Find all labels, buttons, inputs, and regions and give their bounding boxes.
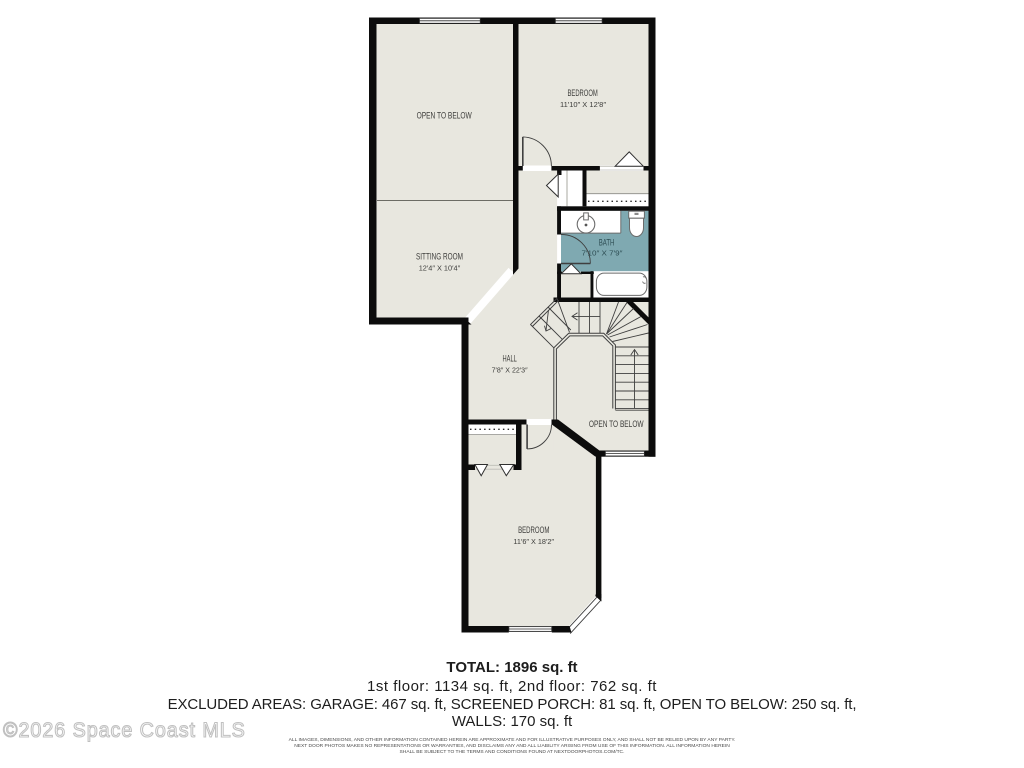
svg-text:SITTING ROOM: SITTING ROOM <box>416 252 463 262</box>
svg-text:OPEN TO BELOW: OPEN TO BELOW <box>417 111 473 121</box>
svg-text:11′10″ X 12′8″: 11′10″ X 12′8″ <box>560 100 606 109</box>
svg-text:OPEN TO BELOW: OPEN TO BELOW <box>589 419 644 429</box>
svg-text:BEDROOM: BEDROOM <box>518 525 549 535</box>
svg-text:11′6″ X 18′2″: 11′6″ X 18′2″ <box>513 537 554 546</box>
svg-text:7′8″ X 22′3″: 7′8″ X 22′3″ <box>492 366 528 375</box>
svg-text:BEDROOM: BEDROOM <box>568 88 598 98</box>
svg-text:HALL: HALL <box>503 353 517 363</box>
svg-text:BATH: BATH <box>599 237 615 247</box>
svg-text:12′4″ X 10′4″: 12′4″ X 10′4″ <box>419 263 461 272</box>
svg-text:7′10″ X 7′9″: 7′10″ X 7′9″ <box>582 248 623 257</box>
